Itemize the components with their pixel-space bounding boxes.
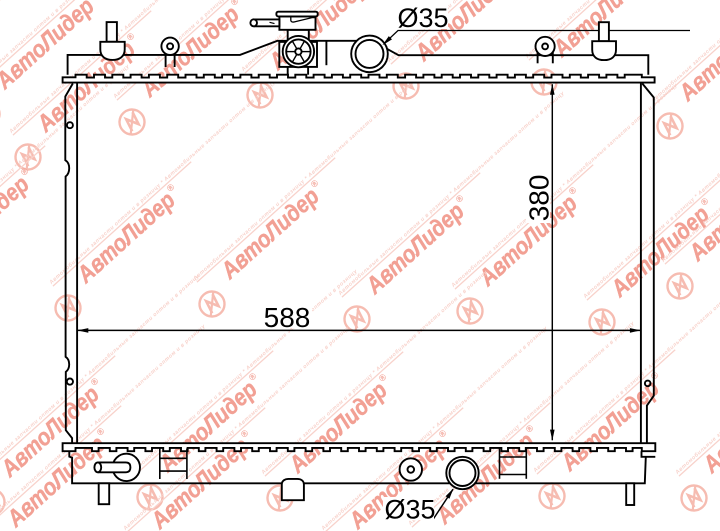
- svg-text:Ø35: Ø35: [385, 495, 436, 525]
- svg-text:380: 380: [524, 175, 555, 222]
- svg-text:588: 588: [264, 302, 311, 333]
- svg-text:Ø35: Ø35: [398, 3, 449, 33]
